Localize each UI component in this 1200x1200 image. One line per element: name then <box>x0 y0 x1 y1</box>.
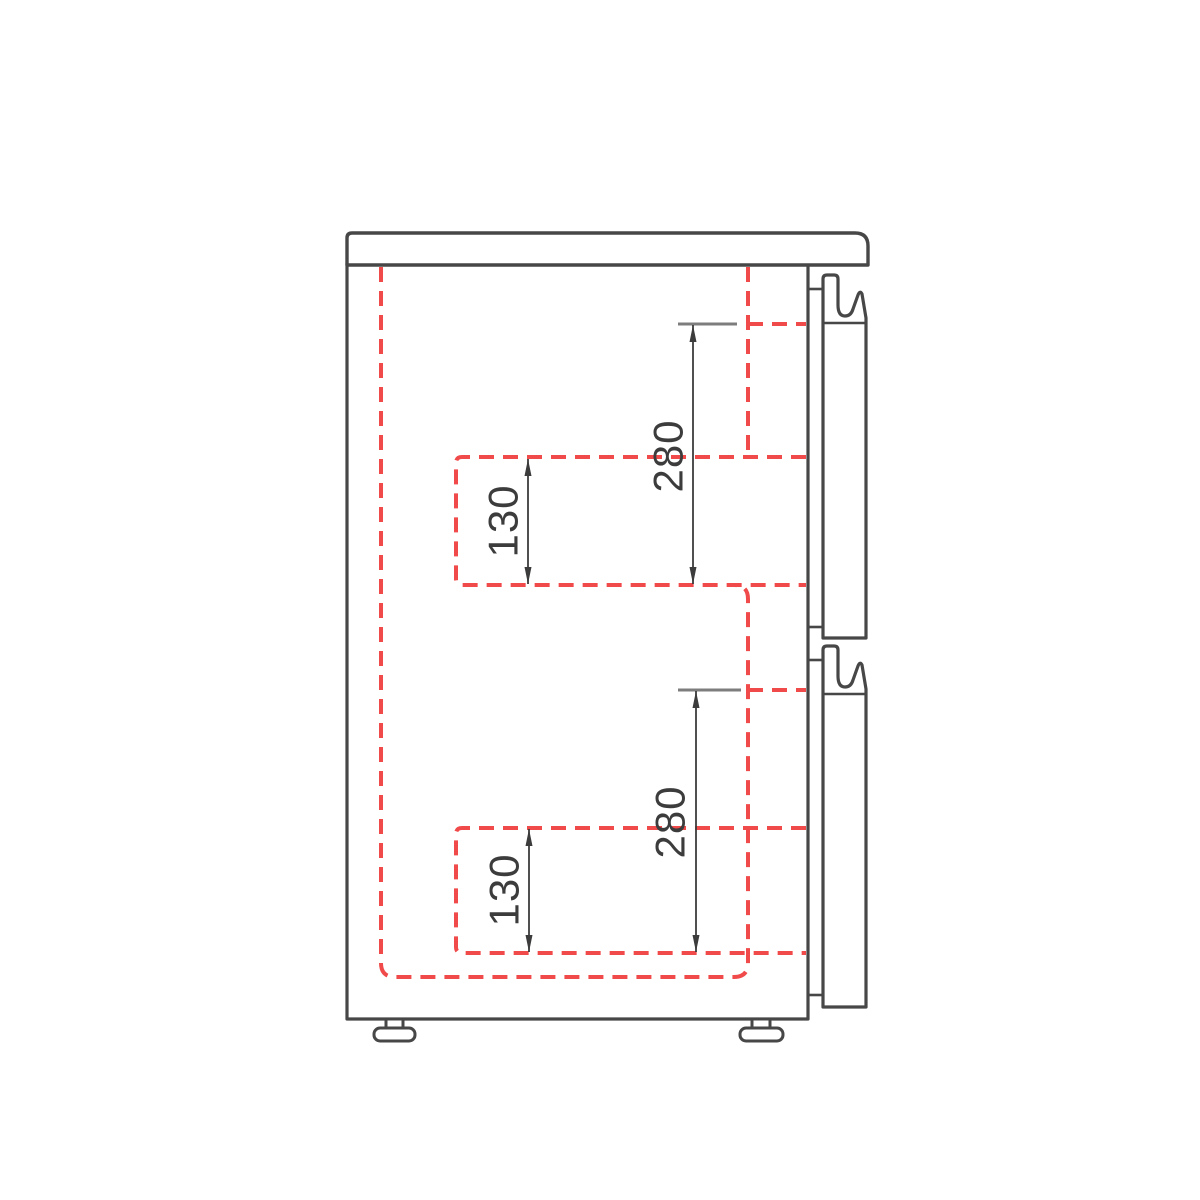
right-foot <box>740 1019 783 1041</box>
cabinet-carcass-outline <box>347 265 808 1019</box>
dimension-upper-box: 130 <box>480 459 532 584</box>
lower-drawer-front <box>808 646 866 1007</box>
dimension-label-lower-130: 130 <box>481 853 528 926</box>
cabinet-body <box>347 265 808 1019</box>
dimension-lower-depth: 280 <box>647 691 700 952</box>
interior-dashed-lines <box>381 267 806 977</box>
dimension-label-upper-280: 280 <box>645 419 692 492</box>
upper-drawer-front <box>808 275 866 638</box>
technical-drawing-canvas: 280 130 280 130 <box>0 0 1200 1200</box>
left-foot-base <box>374 1028 415 1041</box>
upper-drawer-panel <box>823 275 866 638</box>
countertop <box>347 233 868 265</box>
arrowhead-down <box>693 935 700 952</box>
lower-drawer-panel <box>823 646 866 1007</box>
dimension-label-lower-280: 280 <box>647 785 694 858</box>
arrowhead-down <box>526 935 533 952</box>
arrowhead-up <box>690 325 697 342</box>
arrowhead-down <box>690 567 697 584</box>
dimension-label-upper-130: 130 <box>480 484 527 557</box>
cabinet-side-section-drawing: 280 130 280 130 <box>0 0 1200 1200</box>
dimension-lower-box: 130 <box>481 829 533 952</box>
left-foot <box>374 1019 415 1041</box>
arrowhead-up <box>526 829 533 846</box>
arrowhead-up <box>525 459 532 476</box>
arrowhead-down <box>525 567 532 584</box>
arrowhead-up <box>693 691 700 708</box>
right-foot-base <box>740 1028 783 1041</box>
dimension-upper-depth: 280 <box>645 325 697 584</box>
